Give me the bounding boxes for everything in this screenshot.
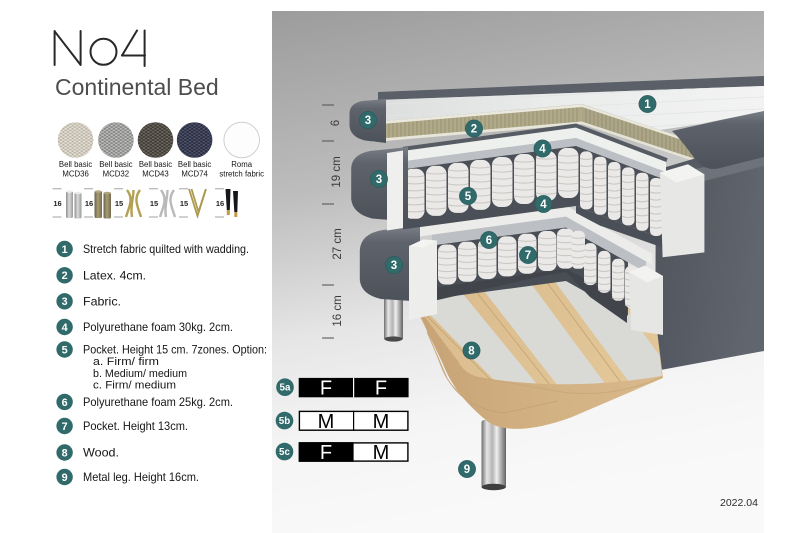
svg-text:3: 3 [365, 115, 371, 127]
svg-text:7: 7 [62, 421, 68, 433]
svg-text:M: M [373, 411, 390, 433]
svg-text:c. Firm/ medium: c. Firm/ medium [93, 379, 176, 391]
svg-text:15: 15 [115, 199, 123, 208]
svg-text:6: 6 [330, 120, 342, 126]
svg-text:27 cm: 27 cm [332, 228, 344, 259]
svg-text:Bell basic: Bell basic [139, 160, 172, 169]
svg-text:Metal leg. Height 16cm.: Metal leg. Height 16cm. [83, 470, 199, 484]
svg-text:19 cm: 19 cm [331, 156, 343, 187]
svg-text:Stretch fabric quilted with wa: Stretch fabric quilted with wadding. [83, 242, 249, 256]
svg-text:Latex. 4cm.: Latex. 4cm. [83, 269, 146, 283]
svg-text:8: 8 [62, 447, 68, 459]
svg-text:1: 1 [62, 244, 68, 256]
svg-text:Fabric.: Fabric. [83, 295, 121, 309]
svg-text:b. Medium/ medium: b. Medium/ medium [93, 368, 187, 380]
svg-text:6: 6 [62, 397, 68, 409]
svg-text:F: F [320, 378, 332, 400]
svg-text:F: F [320, 442, 332, 464]
svg-text:Polyurethane foam 30kg. 2cm.: Polyurethane foam 30kg. 2cm. [83, 320, 233, 334]
svg-text:F: F [375, 378, 387, 400]
svg-text:Pocket. Height 13cm.: Pocket. Height 13cm. [83, 419, 188, 433]
svg-text:4: 4 [540, 199, 547, 211]
svg-text:5: 5 [465, 191, 472, 203]
svg-text:5a: 5a [280, 383, 291, 394]
svg-text:Roma: Roma [231, 160, 252, 169]
svg-text:MCD32: MCD32 [103, 170, 129, 179]
svg-text:16: 16 [216, 199, 224, 208]
svg-text:MCD74: MCD74 [181, 170, 208, 179]
svg-text:M: M [373, 442, 390, 464]
svg-text:2: 2 [62, 270, 68, 282]
svg-text:MCD36: MCD36 [62, 170, 88, 179]
svg-text:9: 9 [62, 472, 68, 484]
svg-text:stretch fabric: stretch fabric [219, 170, 264, 179]
svg-text:Pocket. Height 15 cm. 7zones.: Pocket. Height 15 cm. 7zones. Option: [83, 343, 267, 357]
svg-text:a. Firm/ firm: a. Firm/ firm [93, 356, 159, 368]
svg-text:3: 3 [376, 174, 382, 186]
svg-text:5c: 5c [279, 447, 290, 458]
svg-text:Continental Bed: Continental Bed [55, 74, 219, 100]
svg-text:4: 4 [539, 144, 546, 156]
svg-text:16: 16 [85, 199, 93, 208]
svg-text:15: 15 [180, 199, 188, 208]
svg-text:16 cm: 16 cm [332, 295, 344, 326]
svg-text:7: 7 [525, 250, 531, 262]
svg-text:2022.04: 2022.04 [720, 497, 758, 509]
svg-text:9: 9 [464, 464, 470, 476]
svg-text:3: 3 [391, 260, 397, 272]
svg-text:Wood.: Wood. [83, 446, 119, 460]
svg-text:Polyurethane foam 25kg. 2cm.: Polyurethane foam 25kg. 2cm. [83, 395, 233, 409]
svg-text:6: 6 [486, 235, 492, 247]
svg-text:3: 3 [62, 296, 68, 308]
svg-text:Bell basic: Bell basic [178, 160, 211, 169]
svg-text:5b: 5b [279, 416, 290, 427]
svg-text:Bell basic: Bell basic [59, 160, 92, 169]
svg-text:MCD43: MCD43 [142, 170, 168, 179]
svg-text:8: 8 [468, 346, 475, 358]
svg-text:15: 15 [150, 199, 158, 208]
svg-text:2: 2 [471, 124, 477, 136]
svg-text:4: 4 [62, 322, 68, 334]
svg-text:M: M [318, 411, 335, 433]
svg-text:16: 16 [53, 199, 61, 208]
svg-text:5: 5 [62, 344, 68, 356]
svg-text:1: 1 [644, 99, 651, 111]
svg-text:Bell basic: Bell basic [99, 160, 132, 169]
